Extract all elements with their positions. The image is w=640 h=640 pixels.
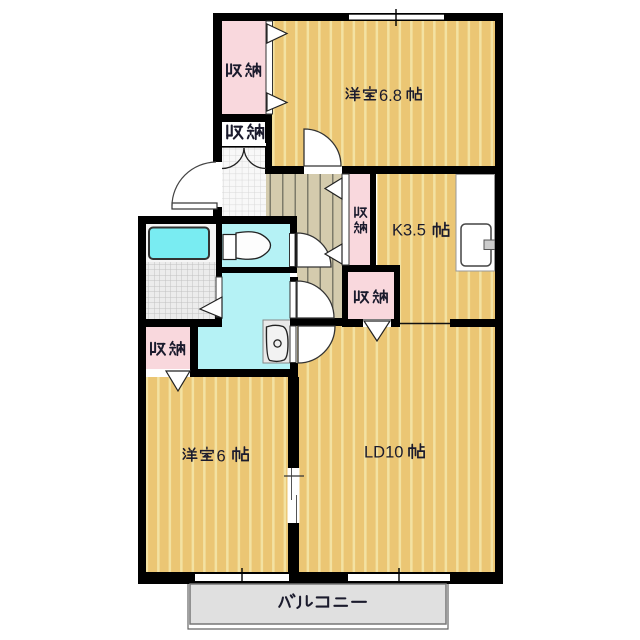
svg-text:LD10: LD10 <box>364 444 403 462</box>
svg-text:6: 6 <box>217 448 226 466</box>
svg-text:6.8: 6.8 <box>379 87 402 105</box>
svg-text:K3.5: K3.5 <box>392 222 426 240</box>
